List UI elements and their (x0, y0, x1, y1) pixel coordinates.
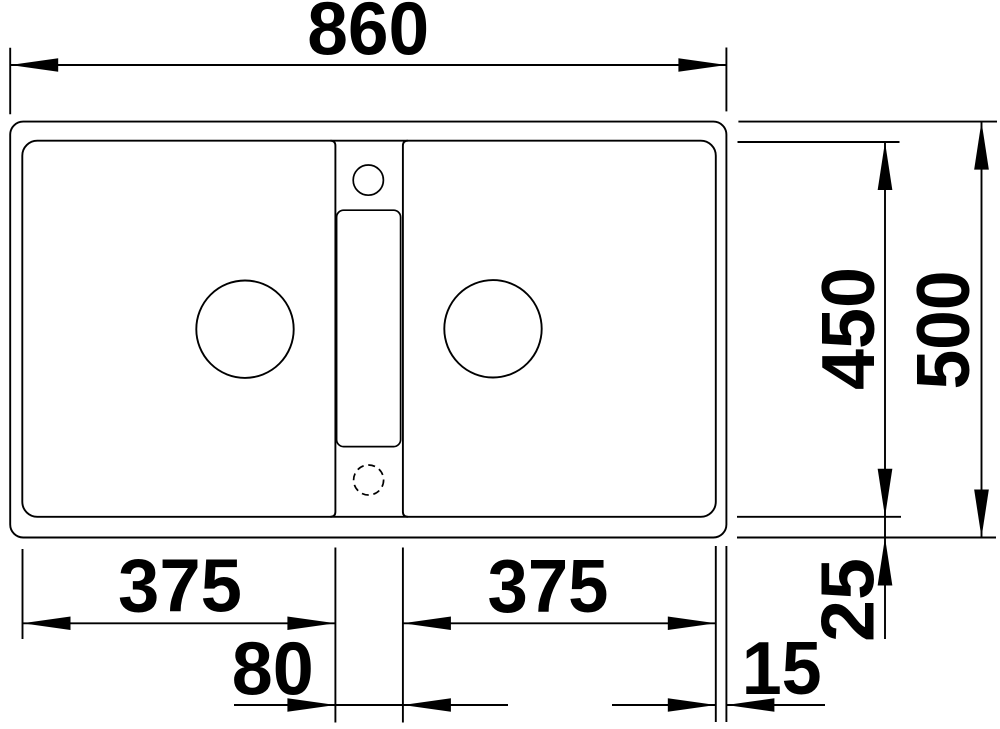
svg-text:15: 15 (742, 626, 822, 710)
svg-text:375: 375 (118, 544, 242, 628)
svg-text:375: 375 (488, 544, 609, 628)
svg-text:500: 500 (901, 271, 985, 390)
svg-text:450: 450 (806, 267, 890, 390)
svg-text:860: 860 (307, 0, 429, 70)
svg-text:80: 80 (232, 627, 314, 711)
